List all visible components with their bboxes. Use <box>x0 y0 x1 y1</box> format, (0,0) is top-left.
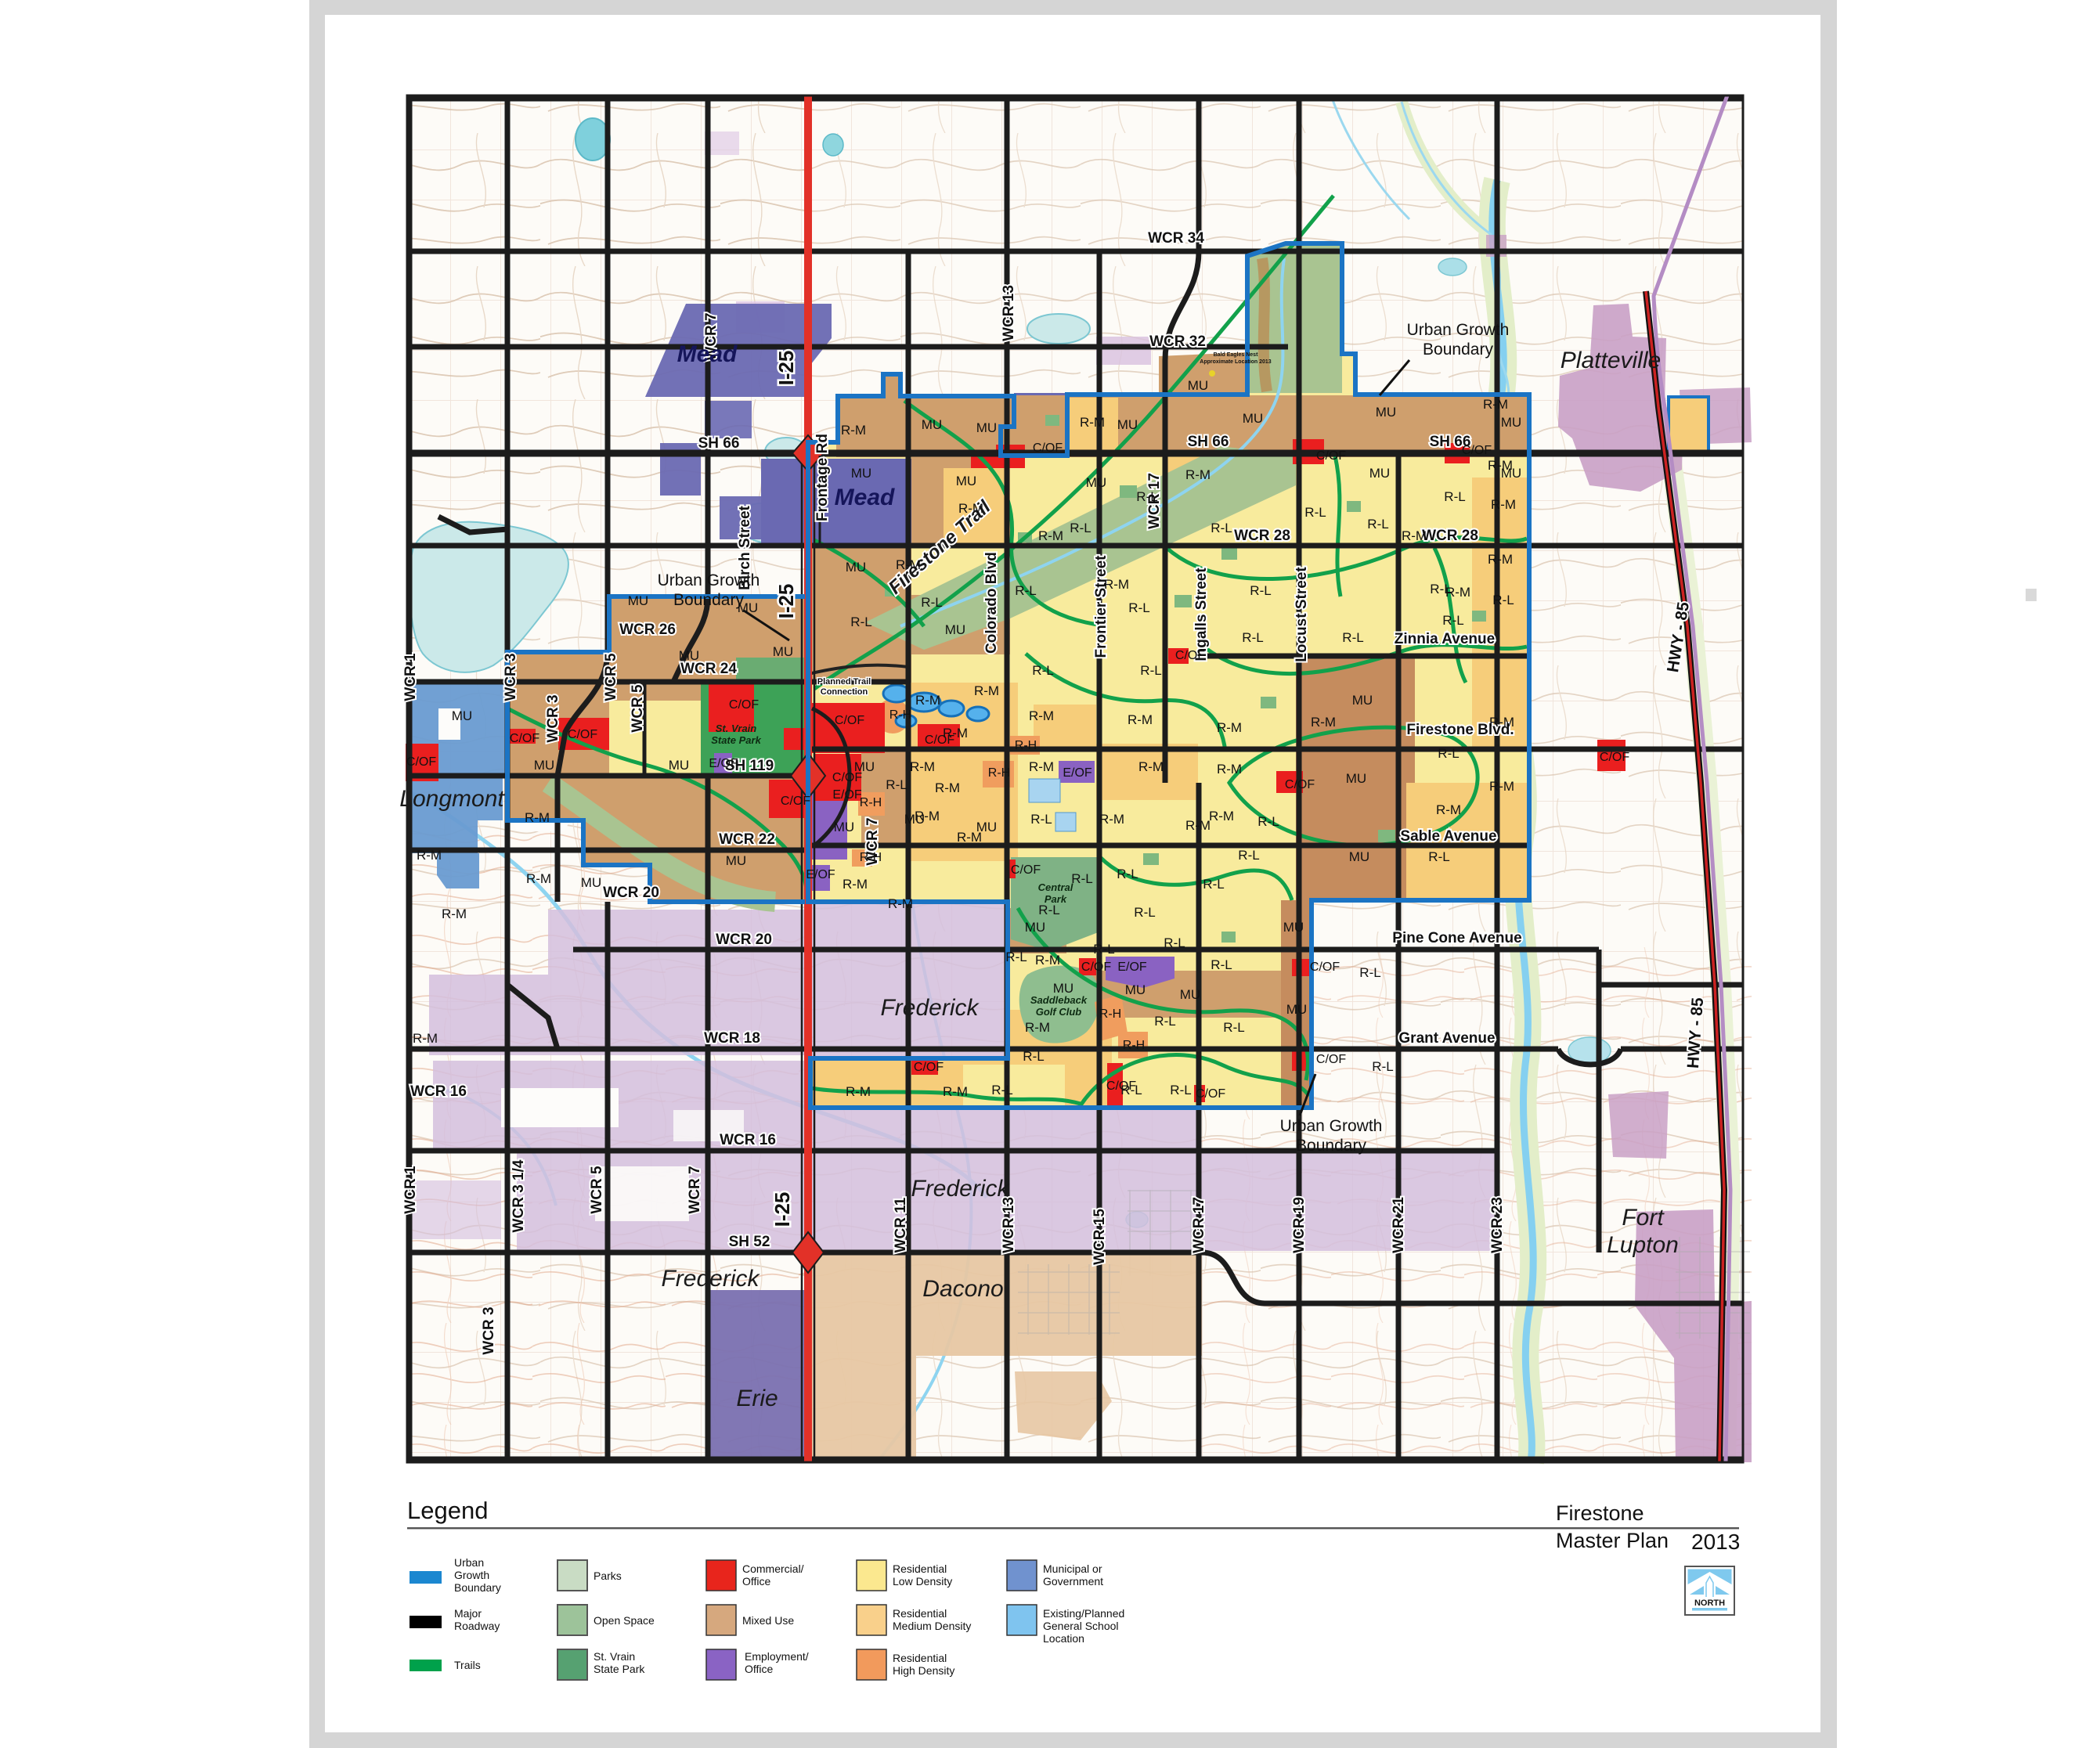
svg-text:R-M: R-M <box>896 557 921 572</box>
svg-text:R-L: R-L <box>1438 746 1459 761</box>
svg-text:Boundary: Boundary <box>1296 1137 1366 1155</box>
svg-text:R-L: R-L <box>1492 593 1514 607</box>
svg-text:Low Density: Low Density <box>893 1575 952 1588</box>
svg-text:WCR 3: WCR 3 <box>481 1306 497 1354</box>
svg-text:Connection: Connection <box>821 687 868 697</box>
svg-text:R-L: R-L <box>1136 489 1157 504</box>
svg-text:MU: MU <box>976 420 997 435</box>
svg-text:R-L: R-L <box>1442 613 1463 628</box>
svg-text:R-H: R-H <box>860 851 882 864</box>
svg-text:C/OF: C/OF <box>781 795 810 808</box>
svg-text:R-L: R-L <box>1223 1020 1244 1035</box>
svg-text:R-H: R-H <box>889 708 911 722</box>
svg-text:R-L: R-L <box>1030 812 1052 827</box>
svg-text:MU: MU <box>1188 378 1208 393</box>
svg-text:R-M: R-M <box>1128 712 1153 727</box>
svg-text:R-L: R-L <box>1093 942 1114 957</box>
svg-text:WCR 5: WCR 5 <box>630 684 646 733</box>
svg-text:C/OF: C/OF <box>1316 1053 1346 1066</box>
svg-text:C/OF: C/OF <box>729 698 759 712</box>
svg-text:General School: General School <box>1043 1620 1119 1632</box>
svg-text:Frederick: Frederick <box>911 1176 1010 1202</box>
svg-text:R-M: R-M <box>846 1084 871 1099</box>
svg-text:R-H: R-H <box>1015 739 1037 752</box>
svg-text:Residential: Residential <box>893 1652 947 1664</box>
svg-text:MU: MU <box>922 417 942 432</box>
svg-text:MU: MU <box>834 820 854 834</box>
svg-text:Saddleback: Saddleback <box>1030 994 1088 1006</box>
svg-text:Dacono: Dacono <box>922 1276 1003 1302</box>
svg-text:WCR 15: WCR 15 <box>1091 1209 1108 1265</box>
svg-text:High Density: High Density <box>893 1664 954 1677</box>
svg-text:Office: Office <box>742 1575 771 1588</box>
svg-text:R-M: R-M <box>1138 759 1164 774</box>
svg-text:R-M: R-M <box>943 1084 968 1099</box>
svg-text:R-M: R-M <box>1488 552 1513 567</box>
svg-text:R-M: R-M <box>974 683 999 698</box>
svg-text:E/OF: E/OF <box>806 868 835 881</box>
svg-text:C/OF: C/OF <box>1600 751 1629 764</box>
svg-text:R-L: R-L <box>1444 489 1465 504</box>
svg-text:R-M: R-M <box>1488 458 1513 473</box>
svg-text:R-M: R-M <box>442 906 467 921</box>
svg-text:R-M: R-M <box>1035 953 1060 968</box>
svg-text:Open Space: Open Space <box>594 1614 655 1627</box>
svg-text:Trails: Trails <box>454 1659 481 1671</box>
svg-text:R-M: R-M <box>915 693 940 708</box>
svg-text:R-M: R-M <box>1402 528 1427 543</box>
svg-text:R-L: R-L <box>1211 521 1232 535</box>
svg-text:Grant Avenue: Grant Avenue <box>1398 1030 1495 1047</box>
svg-text:WCR 5: WCR 5 <box>589 1166 605 1214</box>
svg-text:WCR 18: WCR 18 <box>704 1030 760 1047</box>
svg-text:C/OF: C/OF <box>1011 863 1041 877</box>
svg-text:Boundary: Boundary <box>454 1581 501 1594</box>
svg-text:R-M: R-M <box>841 423 866 438</box>
svg-text:R-M: R-M <box>1489 779 1514 794</box>
svg-text:R-M: R-M <box>1311 715 1336 730</box>
svg-text:Urban: Urban <box>454 1556 484 1569</box>
svg-text:R-L: R-L <box>1203 877 1224 892</box>
svg-text:Frontier Street: Frontier Street <box>1093 555 1110 658</box>
svg-text:R-L: R-L <box>886 777 907 792</box>
svg-text:St. Vrain: St. Vrain <box>594 1650 635 1663</box>
svg-text:MU: MU <box>1180 987 1200 1002</box>
svg-text:NORTH: NORTH <box>1694 1598 1725 1608</box>
svg-text:Mead: Mead <box>677 341 738 367</box>
svg-text:E/OF: E/OF <box>1117 960 1147 974</box>
svg-text:MU: MU <box>1349 849 1369 864</box>
svg-text:R-M: R-M <box>1209 809 1234 824</box>
svg-text:R-L: R-L <box>1211 957 1232 972</box>
svg-text:MU: MU <box>773 644 793 659</box>
svg-text:Ingalls Street: Ingalls Street <box>1193 568 1210 661</box>
svg-text:WCR 17: WCR 17 <box>1191 1197 1207 1253</box>
svg-text:Pine Cone Avenue: Pine Cone Avenue <box>1392 930 1521 946</box>
svg-text:WCR 16: WCR 16 <box>720 1132 776 1148</box>
svg-text:R-M: R-M <box>1038 528 1063 543</box>
svg-text:R-M: R-M <box>1104 577 1129 592</box>
svg-text:C/OF: C/OF <box>1033 442 1063 455</box>
svg-text:R-M: R-M <box>1436 802 1461 817</box>
svg-text:WCR 20: WCR 20 <box>716 932 772 948</box>
svg-text:WCR 3: WCR 3 <box>545 694 561 742</box>
svg-text:R-M: R-M <box>935 780 960 795</box>
svg-text:R-M: R-M <box>1099 812 1124 827</box>
svg-text:MU: MU <box>628 593 648 608</box>
svg-text:C/OF: C/OF <box>406 755 436 769</box>
svg-text:C/OF: C/OF <box>1106 1079 1136 1093</box>
svg-text:R-L: R-L <box>1015 583 1036 598</box>
svg-text:Existing/Planned: Existing/Planned <box>1043 1607 1124 1620</box>
svg-text:Approximate Location 2013: Approximate Location 2013 <box>1200 359 1272 365</box>
svg-text:Boundary: Boundary <box>1423 341 1493 359</box>
svg-text:Fort: Fort <box>1622 1205 1665 1231</box>
svg-text:Municipal or: Municipal or <box>1043 1562 1102 1575</box>
svg-text:R-L: R-L <box>1372 1059 1393 1074</box>
svg-text:Locust Street: Locust Street <box>1294 567 1310 662</box>
svg-text:R-M: R-M <box>1483 397 1508 412</box>
svg-text:Commercial/: Commercial/ <box>742 1562 804 1575</box>
svg-text:R-L: R-L <box>1242 630 1263 645</box>
svg-text:MU: MU <box>1117 417 1138 432</box>
svg-text:Frederick: Frederick <box>661 1266 760 1292</box>
svg-text:R-L: R-L <box>1250 583 1271 598</box>
svg-text:Frontage Rd: Frontage Rd <box>814 434 831 521</box>
svg-text:WCR 20: WCR 20 <box>603 885 659 901</box>
svg-text:Master Plan: Master Plan <box>1556 1529 1669 1552</box>
svg-text:MU: MU <box>1025 920 1045 935</box>
svg-text:Bald Eagles Nest: Bald Eagles Nest <box>1214 352 1258 358</box>
svg-text:MU: MU <box>945 622 965 637</box>
svg-text:R-L: R-L <box>1154 1014 1175 1029</box>
svg-text:Urban Growth: Urban Growth <box>658 571 760 589</box>
svg-text:WCR 32: WCR 32 <box>1149 333 1206 350</box>
svg-text:C/OF: C/OF <box>568 728 597 741</box>
svg-text:C/OF: C/OF <box>1285 778 1315 791</box>
svg-text:Urban Growth: Urban Growth <box>1280 1117 1383 1135</box>
svg-text:MU: MU <box>1125 982 1146 997</box>
svg-text:R-M: R-M <box>910 759 935 774</box>
svg-text:Medium Density: Medium Density <box>893 1620 971 1632</box>
svg-text:SH 66: SH 66 <box>698 435 740 452</box>
svg-text:Firestone: Firestone <box>1556 1501 1644 1525</box>
svg-text:I-25: I-25 <box>774 584 798 619</box>
svg-text:R-M: R-M <box>1217 762 1242 777</box>
svg-text:R-L: R-L <box>1430 582 1451 596</box>
svg-text:R-M: R-M <box>843 877 868 892</box>
svg-text:WCR 1: WCR 1 <box>402 1166 419 1214</box>
svg-text:R-H: R-H <box>988 766 1010 780</box>
svg-text:E/OF: E/OF <box>709 757 738 770</box>
svg-text:Mead: Mead <box>835 485 895 510</box>
svg-text:R-L: R-L <box>1128 600 1149 615</box>
svg-text:MU: MU <box>1501 415 1521 430</box>
svg-text:R-L: R-L <box>1238 848 1259 863</box>
svg-text:R-M: R-M <box>525 810 550 825</box>
svg-text:Colorado Blvd: Colorado Blvd <box>983 552 1000 654</box>
svg-text:R-M: R-M <box>1029 759 1054 774</box>
svg-text:SH 66: SH 66 <box>1188 434 1229 450</box>
svg-text:WCR 34: WCR 34 <box>1148 230 1204 247</box>
svg-text:R-L: R-L <box>1070 521 1091 535</box>
svg-text:Mixed Use: Mixed Use <box>742 1614 794 1627</box>
svg-text:Residential: Residential <box>893 1562 947 1575</box>
svg-text:MU: MU <box>1376 405 1396 420</box>
svg-text:2013: 2013 <box>1691 1530 1740 1554</box>
svg-text:MU: MU <box>534 758 554 773</box>
svg-text:WCR 28: WCR 28 <box>1422 528 1478 544</box>
svg-text:WCR 23: WCR 23 <box>1489 1197 1506 1253</box>
svg-text:Major: Major <box>454 1607 482 1620</box>
svg-text:R-L: R-L <box>991 1083 1012 1097</box>
svg-text:R-L: R-L <box>1170 1083 1191 1097</box>
svg-text:Boundary: Boundary <box>673 591 744 609</box>
svg-text:WCR 24: WCR 24 <box>680 661 737 677</box>
svg-text:C/OF: C/OF <box>1316 449 1346 463</box>
svg-text:Erie: Erie <box>736 1386 778 1411</box>
svg-text:R-M: R-M <box>888 896 913 911</box>
svg-text:R-M: R-M <box>1185 467 1211 482</box>
svg-text:R-H: R-H <box>860 796 882 809</box>
svg-text:R-H: R-H <box>1099 1007 1121 1021</box>
svg-text:R-M: R-M <box>526 871 551 886</box>
svg-text:R-L: R-L <box>1140 663 1161 678</box>
svg-text:MU: MU <box>669 758 689 773</box>
svg-text:WCR 28: WCR 28 <box>1234 528 1290 544</box>
svg-text:R-L: R-L <box>850 615 871 629</box>
svg-text:R-H: R-H <box>1123 1039 1145 1052</box>
svg-text:Roadway: Roadway <box>454 1620 500 1632</box>
svg-text:Golf Club: Golf Club <box>1036 1006 1082 1018</box>
svg-text:MU: MU <box>1283 920 1304 935</box>
svg-text:Government: Government <box>1043 1575 1103 1588</box>
svg-text:WCR 22: WCR 22 <box>719 831 775 848</box>
svg-text:R-M: R-M <box>417 848 442 863</box>
svg-text:E/OF: E/OF <box>1063 766 1092 780</box>
svg-text:Location: Location <box>1043 1632 1084 1645</box>
svg-text:St. Vrain: St. Vrain <box>716 723 757 734</box>
svg-text:WCR 7: WCR 7 <box>687 1166 703 1213</box>
svg-text:MU: MU <box>1086 475 1106 490</box>
svg-text:R-L: R-L <box>1032 663 1053 678</box>
svg-text:Office: Office <box>745 1663 774 1675</box>
svg-text:MU: MU <box>581 875 601 890</box>
svg-text:R-M: R-M <box>1489 715 1514 730</box>
svg-text:R-M: R-M <box>1185 818 1211 833</box>
svg-text:State Park: State Park <box>594 1663 645 1675</box>
svg-text:C/OF: C/OF <box>1175 649 1205 662</box>
svg-text:Frederick: Frederick <box>880 995 980 1021</box>
svg-text:MU: MU <box>679 648 699 663</box>
svg-text:Central: Central <box>1038 881 1073 893</box>
svg-text:I-25: I-25 <box>770 1192 794 1227</box>
svg-text:R-M: R-M <box>1491 497 1516 512</box>
svg-text:WCR 26: WCR 26 <box>619 622 676 638</box>
svg-text:C/OF: C/OF <box>832 771 862 784</box>
svg-text:C/OF: C/OF <box>1462 444 1492 457</box>
svg-text:C/OF: C/OF <box>1310 960 1340 974</box>
svg-text:MU: MU <box>1053 981 1073 996</box>
svg-text:WCR 16: WCR 16 <box>410 1083 467 1100</box>
svg-text:R-L: R-L <box>1257 814 1279 829</box>
svg-text:MU: MU <box>726 853 746 868</box>
svg-text:R-M: R-M <box>1029 708 1054 723</box>
svg-text:R-L: R-L <box>1134 905 1155 920</box>
svg-text:Urban Growth: Urban Growth <box>1407 321 1510 339</box>
svg-text:Legend: Legend <box>407 1497 488 1524</box>
svg-text:WCR 1: WCR 1 <box>402 653 419 701</box>
svg-text:R-L: R-L <box>1164 935 1185 950</box>
svg-text:R-L: R-L <box>1117 867 1138 881</box>
svg-text:Planned Trail: Planned Trail <box>817 677 871 687</box>
svg-text:WCR 13: WCR 13 <box>1001 285 1017 341</box>
svg-text:MU: MU <box>1369 466 1390 481</box>
svg-text:Lupton: Lupton <box>1607 1232 1679 1258</box>
svg-text:C/OF: C/OF <box>925 733 954 747</box>
svg-text:R-L: R-L <box>1038 903 1059 917</box>
svg-text:I-25: I-25 <box>774 351 798 386</box>
svg-text:MU: MU <box>738 600 758 615</box>
svg-text:WCR 3: WCR 3 <box>503 653 519 701</box>
svg-text:MU: MU <box>1286 1002 1307 1017</box>
svg-text:R-L: R-L <box>1367 517 1388 532</box>
svg-text:E/OF: E/OF <box>832 788 862 802</box>
svg-text:R-L: R-L <box>1359 965 1380 980</box>
svg-text:C/OF: C/OF <box>835 714 864 727</box>
svg-text:Zinnia Avenue: Zinnia Avenue <box>1395 631 1495 647</box>
svg-text:MU: MU <box>851 466 871 481</box>
svg-text:R-L: R-L <box>1023 1049 1044 1064</box>
svg-text:Parks: Parks <box>594 1570 622 1582</box>
svg-text:WCR 19: WCR 19 <box>1291 1197 1308 1253</box>
svg-text:WCR 13: WCR 13 <box>1001 1197 1017 1253</box>
svg-text:MU: MU <box>846 560 866 575</box>
svg-text:Longmont: Longmont <box>399 786 505 812</box>
svg-text:SH 52: SH 52 <box>729 1234 770 1250</box>
svg-text:R-L: R-L <box>1342 630 1363 645</box>
svg-text:C/OF: C/OF <box>914 1061 944 1074</box>
svg-text:R-M: R-M <box>1080 415 1105 430</box>
svg-text:MU: MU <box>956 474 976 488</box>
svg-text:R-L: R-L <box>1304 505 1326 520</box>
svg-text:MU: MU <box>1243 411 1263 426</box>
svg-text:R-M: R-M <box>957 830 982 845</box>
svg-text:Employment/: Employment/ <box>745 1650 809 1663</box>
svg-text:R-L: R-L <box>1005 950 1027 964</box>
svg-text:R-L: R-L <box>921 595 942 610</box>
svg-text:Platteville: Platteville <box>1561 348 1661 373</box>
svg-text:C/OF: C/OF <box>510 732 539 745</box>
svg-text:R-M: R-M <box>958 501 983 516</box>
svg-text:WCR 11: WCR 11 <box>893 1197 909 1252</box>
svg-text:R-M: R-M <box>915 809 940 824</box>
svg-text:State Park: State Park <box>711 734 761 746</box>
svg-text:WCR 3 1/4: WCR 3 1/4 <box>511 1159 527 1232</box>
svg-text:C/OF: C/OF <box>1196 1087 1225 1101</box>
svg-text:Growth: Growth <box>454 1569 489 1581</box>
svg-text:WCR 5: WCR 5 <box>603 653 619 701</box>
svg-text:MU: MU <box>1346 771 1366 786</box>
svg-text:MU: MU <box>452 708 472 723</box>
svg-text:Residential: Residential <box>893 1607 947 1620</box>
svg-text:R-L: R-L <box>1428 849 1449 864</box>
svg-text:Sable Avenue: Sable Avenue <box>1400 828 1496 845</box>
svg-text:WCR 21: WCR 21 <box>1391 1197 1407 1253</box>
svg-text:MU: MU <box>1352 693 1373 708</box>
svg-text:C/OF: C/OF <box>1081 960 1111 974</box>
svg-text:R-M: R-M <box>413 1031 438 1046</box>
svg-text:R-L: R-L <box>1071 871 1092 886</box>
svg-text:R-M: R-M <box>1217 720 1242 735</box>
svg-text:R-M: R-M <box>1025 1020 1050 1035</box>
